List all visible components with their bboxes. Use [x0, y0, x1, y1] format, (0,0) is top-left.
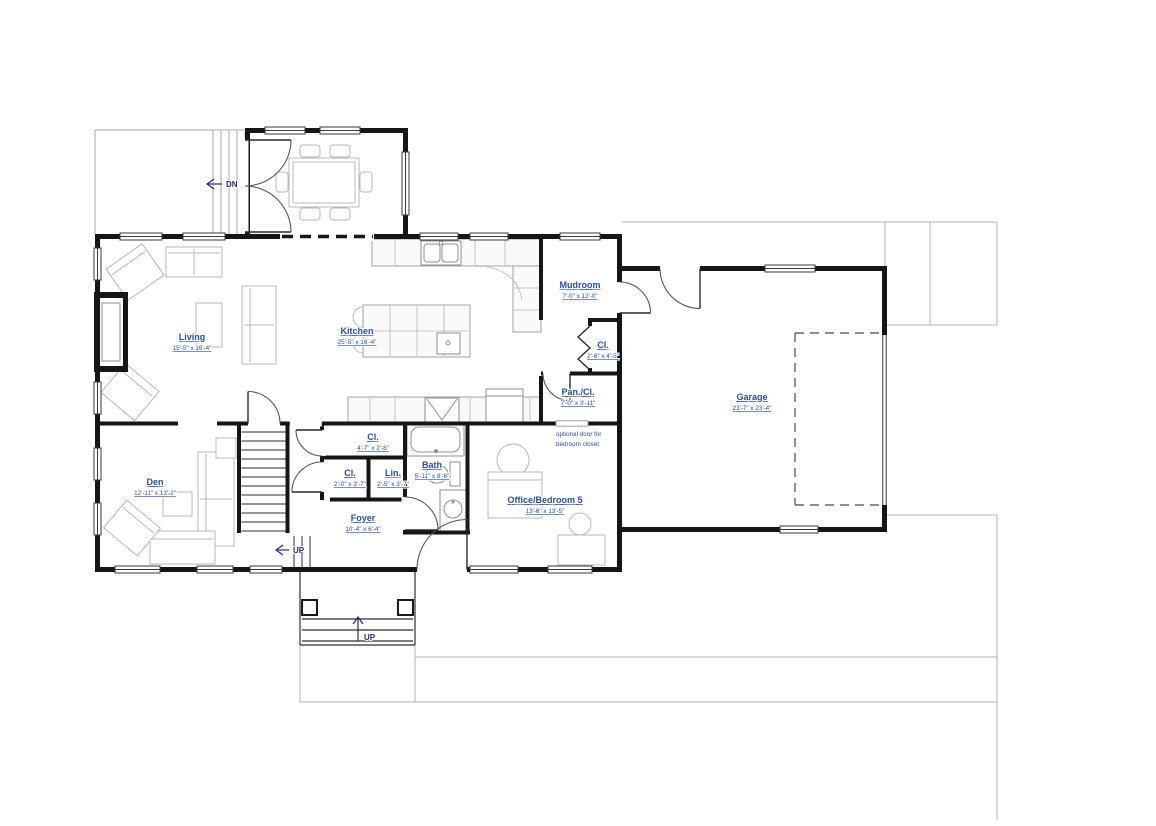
window	[94, 382, 101, 414]
svg-text:Den: Den	[146, 477, 163, 487]
svg-text:23'-7" x 23'-4": 23'-7" x 23'-4"	[733, 405, 772, 412]
svg-text:2'-5" x 3'-7": 2'-5" x 3'-7"	[377, 481, 409, 488]
svg-text:2'-6" x 4'-5": 2'-6" x 4'-5"	[587, 353, 619, 360]
window	[115, 566, 160, 573]
window	[250, 566, 282, 573]
svg-text:4'-7" x 2'-8": 4'-7" x 2'-8"	[357, 445, 389, 452]
window	[94, 448, 101, 480]
svg-text:Foyer: Foyer	[351, 513, 376, 523]
dining-set	[276, 145, 372, 220]
window	[780, 526, 818, 533]
kitchen-counters	[348, 239, 541, 422]
svg-text:optional door for: optional door for	[556, 431, 602, 438]
bifold-door	[578, 326, 590, 370]
room-label-garage: Garage23'-7" x 23'-4"	[733, 392, 772, 412]
note-optional-door: optional door for bedroom closet	[556, 431, 602, 448]
svg-text:10'-4" x 6'-4": 10'-4" x 6'-4"	[345, 526, 380, 533]
window	[183, 233, 225, 240]
svg-text:Lin.: Lin.	[385, 468, 401, 478]
svg-text:12'-11" x 13'-2": 12'-11" x 13'-2"	[134, 490, 176, 497]
porch-column	[398, 600, 413, 615]
window	[94, 503, 101, 535]
window	[94, 248, 101, 280]
svg-text:Cl.: Cl.	[597, 340, 609, 350]
svg-text:Pan./Cl.: Pan./Cl.	[561, 387, 594, 397]
window	[420, 233, 458, 240]
room-label-hall-closet: Cl.4'-7" x 2'-8"	[357, 432, 389, 452]
mudroom-garage-door	[616, 282, 651, 313]
stairs-up-annotation: UP	[276, 545, 305, 555]
window	[470, 566, 518, 573]
room-label-den: Den12'-11" x 13'-2"	[134, 477, 176, 497]
svg-text:Bath: Bath	[422, 460, 442, 470]
den-furniture	[104, 438, 236, 564]
floor-plan-drawing: Living15'-5" x 16'-4" Kitchen25'-5" x 16…	[0, 0, 1156, 826]
room-label-mudroom: Mudroom7'-0" x 12'-0"	[560, 280, 601, 300]
room-label-foyer: Foyer10'-4" x 6'-4"	[345, 513, 380, 533]
svg-text:25'-5" x 16'-4": 25'-5" x 16'-4"	[338, 339, 377, 346]
svg-text:Living: Living	[179, 332, 206, 342]
garage-side-door	[660, 265, 700, 309]
svg-text:Mudroom: Mudroom	[560, 280, 601, 290]
svg-text:7'-0" x 12'-0": 7'-0" x 12'-0"	[562, 293, 597, 300]
svg-text:13'-6" x 13'-5": 13'-6" x 13'-5"	[526, 508, 565, 515]
svg-text:Garage: Garage	[736, 392, 767, 402]
svg-text:DN: DN	[226, 180, 238, 189]
garage-door	[881, 335, 888, 505]
room-label-mudroom-closet: Cl.2'-6" x 4'-5"	[587, 340, 619, 360]
room-label-foyer-closet: Cl.2'-0" x 3'-7"	[334, 468, 366, 488]
window	[548, 566, 592, 573]
svg-text:Office/Bedroom 5: Office/Bedroom 5	[507, 495, 582, 505]
deck-dn-annotation: DN	[207, 179, 238, 189]
floor-plan-page: Living15'-5" x 16'-4" Kitchen25'-5" x 16…	[0, 0, 1156, 826]
svg-text:5'-11" x 9'-6": 5'-11" x 9'-6"	[415, 473, 450, 480]
svg-text:2'-0" x 3'-7": 2'-0" x 3'-7"	[334, 481, 366, 488]
svg-text:Kitchen: Kitchen	[340, 326, 373, 336]
window	[402, 152, 409, 215]
porch-column	[302, 600, 317, 615]
deck	[95, 130, 245, 234]
svg-text:UP: UP	[364, 633, 376, 642]
window	[470, 233, 508, 240]
garage-door-dashed-outline	[795, 333, 882, 505]
room-label-pantry: Pan./Cl.7'-0" x 3'-11"	[561, 387, 596, 407]
window	[197, 566, 233, 573]
svg-text:7'-0" x 3'-11": 7'-0" x 3'-11"	[561, 400, 596, 407]
window	[765, 265, 815, 272]
hall-closet-door	[296, 430, 326, 456]
window	[560, 233, 600, 240]
window	[265, 127, 305, 134]
window	[120, 233, 162, 240]
stair-door	[248, 392, 280, 428]
svg-text:Cl.: Cl.	[367, 432, 379, 442]
svg-text:Cl.: Cl.	[344, 468, 356, 478]
den-opening	[178, 421, 217, 427]
svg-text:bedroom closet: bedroom closet	[556, 441, 599, 448]
optional-door	[556, 421, 588, 426]
foyer-closet-door	[292, 462, 326, 492]
hall-opening	[290, 421, 322, 427]
bath-door	[402, 497, 439, 530]
svg-text:UP: UP	[293, 546, 305, 555]
svg-text:15'-5" x 16'-4": 15'-5" x 16'-4"	[173, 345, 212, 352]
window	[320, 127, 360, 134]
